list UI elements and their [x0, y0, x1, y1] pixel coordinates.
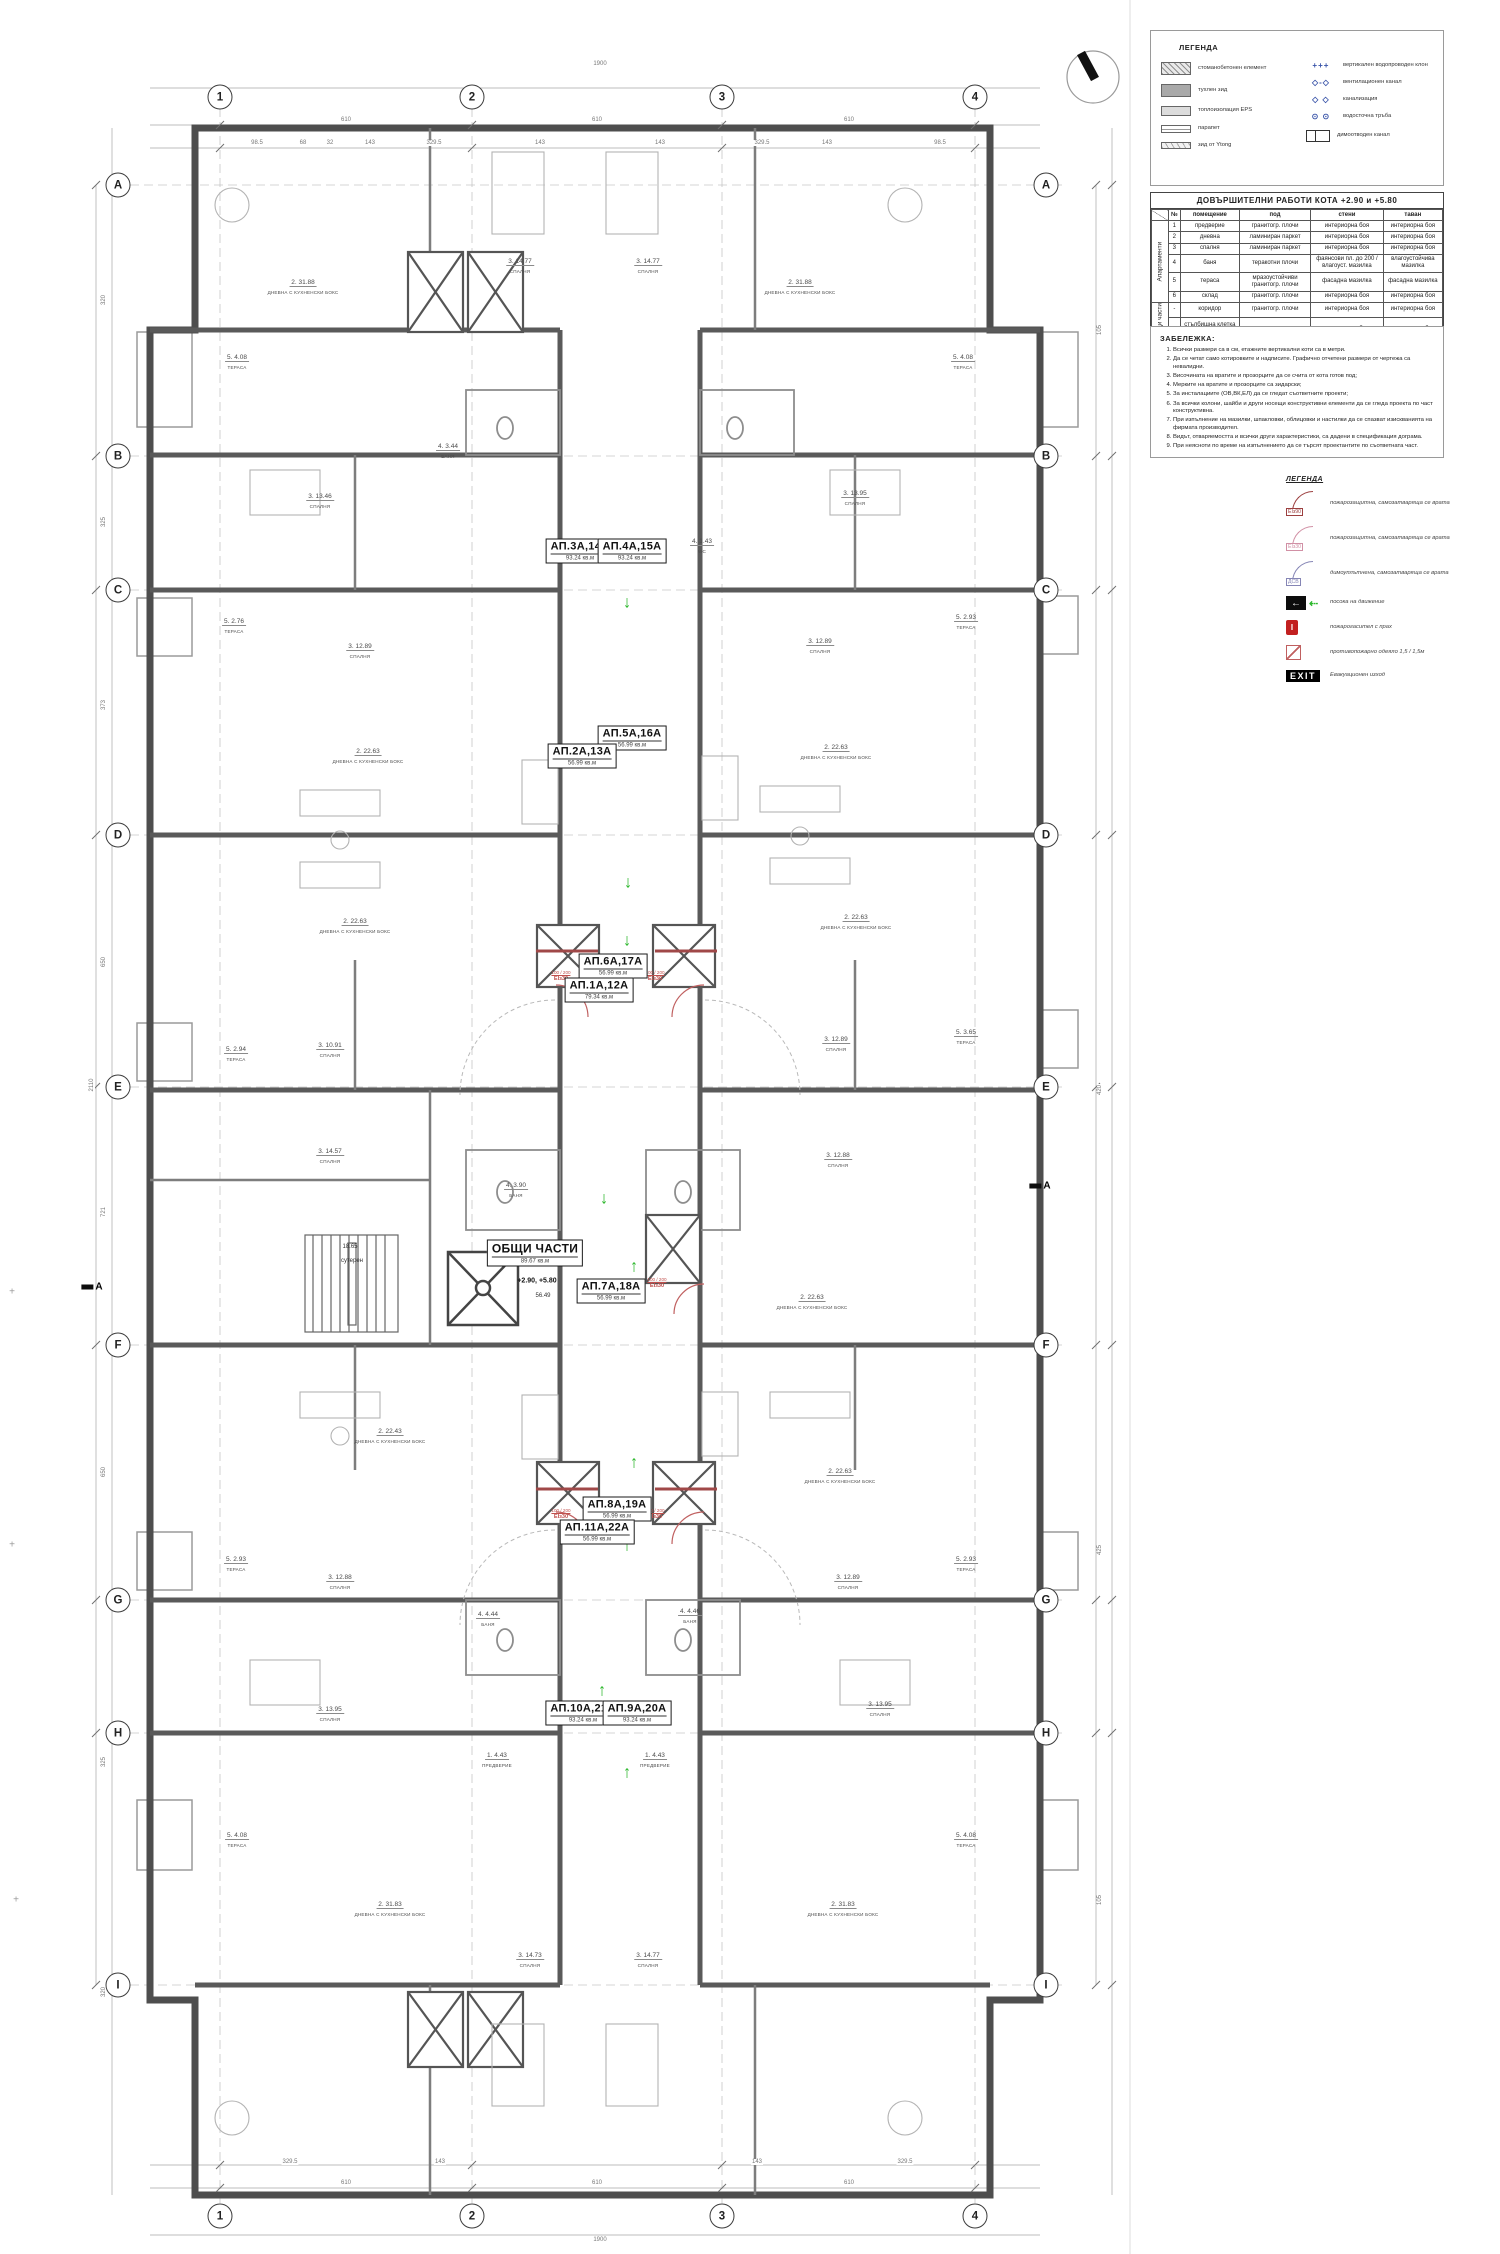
dimension-text: 143: [534, 140, 546, 146]
nm-text: АП.7А,18А: [582, 1281, 641, 1293]
rn-text: СПАЛНЯ: [306, 504, 334, 509]
legend-materials: ЛЕГЕНДА стоманобетонен елементтухлен зид…: [1150, 30, 1444, 186]
legend-item-label: водосточна тръба: [1343, 113, 1391, 120]
nm-text: АП.8А,19А: [588, 1499, 647, 1511]
ra-text: 3. 13.46: [306, 493, 334, 501]
table-row: 3спалняламиниран паркетинтериорна бояинт…: [1152, 243, 1443, 254]
nm-text: АП.6А,17А: [584, 956, 643, 968]
dimension-text: 373: [101, 699, 107, 711]
legend-item-label: димоотводен канал: [1337, 132, 1390, 139]
table-row: 5терасамразоустойчиви гранитогр. плочифа…: [1152, 273, 1443, 291]
table-cell: интериорна боя: [1311, 302, 1384, 317]
legend-item: +++вертикален водопроводен клон: [1306, 62, 1433, 70]
grid-axis-bubble: 1: [208, 85, 233, 110]
rn-text: ТЕРАСА: [225, 365, 249, 370]
rn-text: ДНЕВНА С КУХНЕНСКИ БОКС: [821, 925, 892, 930]
ra-text: 5. 2.76: [222, 618, 246, 626]
rn-text: ДНЕВНА С КУХНЕНСКИ БОКС: [808, 1912, 879, 1917]
dimension-text: 610: [843, 2180, 855, 2186]
fire-legend-item: EIз90пожарозащитна, самозатваряща се вра…: [1286, 491, 1456, 516]
table-cell: баня: [1180, 254, 1239, 272]
table-cell: дневна: [1180, 232, 1239, 243]
room-label: 5. 2.93ТЕРАСА: [954, 606, 978, 630]
parapet-swatch-icon: [1161, 125, 1191, 133]
direction-arrow-icon: ↓: [623, 932, 632, 949]
section-marker: А: [81, 1282, 102, 1293]
table-cell: 3: [1169, 243, 1181, 254]
grid-axis-bubble: A: [106, 173, 131, 198]
dimension-text: 98.5: [933, 140, 947, 146]
rn-text: ДНЕВНА С КУХНЕНСКИ БОКС: [355, 1912, 426, 1917]
room-label: 3. 12.89СПАЛНЯ: [806, 630, 834, 654]
room-label: 3. 14.73СПАЛНЯ: [516, 1944, 544, 1968]
ar-text: 56.99 кв.м: [582, 1294, 641, 1303]
ar-text: 93.24 кв.м: [603, 554, 662, 563]
fire-door-label: 100 / 200EIз30: [645, 970, 664, 982]
fire-legend-label: противопожарно одеяло 1,5 / 1,5м: [1330, 649, 1424, 656]
apartment-label: АП.7А,18А56.99 кв.м: [577, 1279, 646, 1304]
fire-door-90-icon: EIз90: [1286, 491, 1320, 516]
sl-text: А: [95, 1282, 102, 1293]
ra-text: 5. 4.08: [225, 354, 249, 362]
room-label: 2. 22.63ДНЕВНА С КУХНЕНСКИ БОКС: [777, 1286, 848, 1310]
table-cell: тераса: [1180, 273, 1239, 291]
ra-text: 3. 12.89: [806, 638, 834, 646]
door-arc: ДСВ: [1286, 578, 1301, 586]
table-group-label: Апартаменти: [1152, 221, 1169, 303]
smoke-duct-icon: [1306, 130, 1330, 142]
rn-text: ПРЕДВЕРИЕ: [640, 1763, 670, 1768]
note-item: Всички размери са в см, етажните вертика…: [1173, 347, 1434, 355]
flag-text: [1029, 1184, 1041, 1189]
room-label: 5. 3.65ТЕРАСА: [954, 1021, 978, 1045]
table-row: 6складгранитогр. плочиинтериорна бояинте…: [1152, 291, 1443, 302]
legend-fire-safety: ЛЕГЕНДА EIз90пожарозащитна, самозатварящ…: [1286, 476, 1456, 692]
grid-axis-bubble: C: [106, 578, 131, 603]
table-cell: интериорна боя: [1383, 232, 1442, 243]
fire-legend-item: ←⇠посока на движение: [1286, 596, 1456, 610]
legend-item: тухлен зид: [1161, 84, 1306, 97]
grid-axis-bubble: D: [1034, 823, 1059, 848]
fire-door-label: 100 / 200EIз30: [647, 1277, 666, 1289]
finish-table-body: Апартаменти1предвериегранитогр. плочиинт…: [1152, 221, 1443, 342]
grid-axis-bubble: F: [1034, 1333, 1059, 1358]
room-label: 2. 22.63ДНЕВНА С КУХНЕНСКИ БОКС: [805, 1460, 876, 1484]
flag-text: [81, 1285, 93, 1290]
ar-text: 93.24 кв.м: [608, 1716, 667, 1725]
fire-legend-item: Iпожарогасител с прах: [1286, 620, 1456, 635]
exit-sign-icon: EXIT: [1286, 670, 1320, 682]
table-column-header: таван: [1383, 210, 1442, 221]
room-label: 5. 2.76ТЕРАСА: [222, 610, 246, 634]
legend-item-label: тухлен зид: [1198, 87, 1227, 94]
room-label: 3. 12.88СПАЛНЯ: [326, 1566, 354, 1590]
table-corner-cell: [1152, 210, 1169, 221]
rn-text: СПАЛНЯ: [866, 1712, 894, 1717]
room-label: 5. 4.08ТЕРАСА: [951, 346, 975, 370]
ra-text: 3. 12.89: [822, 1036, 850, 1044]
table-cell: мразоустойчиви гранитогр. плочи: [1239, 273, 1310, 291]
plan-text: сутерен: [341, 1258, 363, 1264]
fire-legend-item: противопожарно одеяло 1,5 / 1,5м: [1286, 645, 1456, 660]
table-cell: интериорна боя: [1311, 232, 1384, 243]
dimension-text: 143: [654, 140, 666, 146]
legend-item-label: зид от Ytong: [1198, 142, 1231, 149]
legend-item-label: стоманобетонен елемент: [1198, 65, 1266, 72]
table-column-header: №: [1169, 210, 1181, 221]
fire-legend-label: пожарогасител с прах: [1330, 624, 1392, 631]
dimension-text: 325: [101, 516, 107, 528]
direction-arrow-icon: ↑: [630, 1454, 639, 1471]
ra-text: 2. 22.63: [842, 914, 870, 922]
legend-title: ЛЕГЕНДА: [1179, 43, 1433, 52]
rn-text: СПАЛНЯ: [316, 1053, 344, 1058]
concrete-swatch-icon: [1161, 62, 1191, 75]
direction-arrow-icon: ↑: [598, 1682, 607, 1699]
dimension-text: 105: [1097, 324, 1103, 336]
table-cell: -: [1169, 302, 1181, 317]
table-cell: 5: [1169, 273, 1181, 291]
rn-text: ПРЕДВЕРИЕ: [482, 1763, 512, 1768]
rn-text: СПАЛНЯ: [316, 1717, 344, 1722]
rn-text: ДНЕВНА С КУХНЕНСКИ БОКС: [805, 1479, 876, 1484]
fire-legend-label: пожарозащитна, самозатваряща се врата: [1330, 535, 1450, 542]
apartment-label: АП.4А,15А93.24 кв.м: [598, 539, 667, 564]
registration-cross: +: [13, 1895, 19, 1906]
ra-text: 3. 12.89: [346, 643, 374, 651]
brick-swatch-icon: [1161, 84, 1191, 97]
rn-text: СПАЛНЯ: [516, 1963, 544, 1968]
fire-legend-item: ДСВдимоуплътнена, самозатваряща се врата: [1286, 561, 1456, 586]
fire-door-label: 100 / 200EIз30: [551, 1508, 570, 1520]
notes-box: ЗАБЕЛЕЖКА: Всички размери са в см, етажн…: [1150, 326, 1444, 458]
grid-axis-bubble: 2: [460, 2204, 485, 2229]
ra-text: 2. 22.63: [822, 744, 850, 752]
room-label: 2. 31.83ДНЕВНА С КУХНЕНСКИ БОКС: [355, 1893, 426, 1917]
water-riser-icon: +++: [1306, 62, 1336, 70]
room-label: 3. 14.77СПАЛНЯ: [506, 250, 534, 274]
direction-arrow-icon: ↑: [630, 1258, 639, 1275]
registration-cross: +: [9, 1287, 15, 1298]
grid-axis-bubble: F: [106, 1333, 131, 1358]
rn-text: БАНЯ: [476, 1622, 500, 1627]
table-column-header: помещение: [1180, 210, 1239, 221]
table-cell: 6: [1169, 291, 1181, 302]
fire-legend-item: EXITЕвакуационен изход: [1286, 670, 1456, 682]
ra-text: 3. 14.77: [506, 258, 534, 266]
dlt-text: EIз30: [647, 1283, 666, 1289]
table-cell: интериорна боя: [1311, 291, 1384, 302]
ar-text: 56.99 кв.м: [565, 1535, 630, 1544]
room-label: 3. 13.95СПАЛНЯ: [841, 482, 869, 506]
dimension-text: 98.5: [250, 140, 264, 146]
legend-item: ◇ ◇канализация: [1306, 96, 1433, 104]
table-cell: ламиниран паркет: [1239, 232, 1310, 243]
sewer-icon: ◇ ◇: [1306, 96, 1336, 104]
note-item: При неясноти по време на изпълнението да…: [1173, 443, 1434, 451]
rn-text: ДНЕВНА С КУХНЕНСКИ БОКС: [801, 755, 872, 760]
ar-text: 56.99 кв.м: [553, 759, 612, 768]
plan-text: 18.65: [342, 1244, 357, 1250]
vent-duct-icon: ◇-◇: [1306, 79, 1336, 87]
grid-axis-bubble: 3: [710, 2204, 735, 2229]
door-arc: EIз90: [1286, 508, 1303, 516]
ra-text: 3. 12.88: [326, 1574, 354, 1582]
downpipe-icon: ⊙ ⊙: [1306, 113, 1336, 121]
dimension-text: 329.5: [281, 2159, 298, 2165]
dimension-text: 143: [364, 140, 376, 146]
room-label: 3. 13.95СПАЛНЯ: [316, 1698, 344, 1722]
registration-cross: +: [9, 1540, 15, 1551]
direction-arrow-icon: ←⇠: [1286, 596, 1320, 610]
fire-legend-title: ЛЕГЕНДА: [1286, 476, 1456, 483]
dimension-text: 650: [101, 956, 107, 968]
section-marker: А: [1029, 1181, 1050, 1192]
room-label: 4. 3.44БАНЯ: [436, 435, 460, 459]
nm-text: АП.2А,13А: [553, 746, 612, 758]
table-cell: гранитогр. плочи: [1239, 291, 1310, 302]
grid-axis-bubble: D: [106, 823, 131, 848]
note-item: За всички колони, шайби и други носещи к…: [1173, 401, 1434, 416]
fire-door-30-icon: EIз30: [1286, 526, 1320, 551]
grid-axis-bubble: I: [1034, 1973, 1059, 1998]
rn-text: ДНЕВНА С КУХНЕНСКИ БОКС: [765, 290, 836, 295]
table-cell: предверие: [1180, 221, 1239, 232]
rn-text: СПАЛНЯ: [824, 1163, 852, 1168]
grid-axis-bubble: A: [1034, 173, 1059, 198]
dimension-text: 610: [843, 117, 855, 123]
fire-extinguisher-icon: I: [1286, 620, 1320, 635]
room-label: 2. 22.63ДНЕВНА С КУХНЕНСКИ БОКС: [320, 910, 391, 934]
dimension-text: 32: [326, 140, 335, 146]
room-label: 5. 2.93ТЕРАСА: [224, 1548, 248, 1572]
room-label: 5. 4.08ТЕРАСА: [954, 1824, 978, 1848]
rn-text: СПАЛНЯ: [634, 1963, 662, 1968]
ra-text: 4. 4.44: [476, 1611, 500, 1619]
nm-text: ОБЩИ ЧАСТИ: [492, 1242, 578, 1256]
fire-legend-items: EIз90пожарозащитна, самозатваряща се вра…: [1286, 491, 1456, 682]
legend-item-label: вертикален водопроводен клон: [1343, 62, 1428, 69]
table-cell: гранитогр. плочи: [1239, 221, 1310, 232]
smoke-door-icon: ДСВ: [1286, 561, 1320, 586]
dimension-text: 610: [591, 2180, 603, 2186]
grid-axis-bubble: 3: [710, 85, 735, 110]
legend-item: стоманобетонен елемент: [1161, 62, 1306, 75]
dimension-text: 610: [591, 117, 603, 123]
note-item: Височината на вратите и прозорците да се…: [1173, 373, 1434, 381]
rn-text: СПАЛНЯ: [506, 269, 534, 274]
rn-text: БАНЯ: [678, 1619, 702, 1624]
dimension-text: 105: [1097, 1894, 1103, 1906]
table-row: Апартаменти1предвериегранитогр. плочиинт…: [1152, 221, 1443, 232]
apartment-label: АП.2А,13А56.99 кв.м: [548, 744, 617, 769]
legend-materials-right: +++вертикален водопроводен клон◇-◇вентил…: [1306, 62, 1433, 158]
legend-item: ⊙ ⊙водосточна тръба: [1306, 113, 1433, 121]
ra-text: 4. 3.44: [436, 443, 460, 451]
room-label: 3. 14.57СПАЛНЯ: [316, 1140, 344, 1164]
finish-works-table: ДОВЪРШИТЕЛНИ РАБОТИ КОТА +2.90 и +5.80 №…: [1150, 192, 1444, 343]
rn-text: ДНЕВНА С КУХНЕНСКИ БОКС: [777, 1305, 848, 1310]
ra-text: 1. 4.43: [643, 1752, 667, 1760]
ra-text: 2. 31.83: [829, 1901, 857, 1909]
table-column-header: под: [1239, 210, 1310, 221]
table-cell: интериорна боя: [1383, 302, 1442, 317]
ra-text: 4. 4.46: [678, 1608, 702, 1616]
room-label: 5. 4.08ТЕРАСА: [225, 1824, 249, 1848]
rn-text: СПАЛНЯ: [822, 1047, 850, 1052]
common-area-label: ОБЩИ ЧАСТИ89.67 кв.м: [487, 1240, 583, 1267]
finish-table-title: ДОВЪРШИТЕЛНИ РАБОТИ КОТА +2.90 и +5.80: [1151, 193, 1443, 209]
room-label: 3. 14.77СПАЛНЯ: [634, 1944, 662, 1968]
table-cell: фасадна мазилка: [1311, 273, 1384, 291]
legend-item-label: канализация: [1343, 96, 1378, 103]
fire-blanket-icon: [1286, 645, 1320, 660]
ra-text: 2. 31.88: [289, 279, 317, 287]
rn-text: ТЕРАСА: [222, 629, 246, 634]
room-label: 3. 13.95СПАЛНЯ: [866, 1693, 894, 1717]
nm-text: АП.4А,15А: [603, 541, 662, 553]
grid-axis-bubble: 4: [963, 2204, 988, 2229]
room-label: 4. 3.90БАНЯ: [504, 1174, 528, 1198]
ra-text: 5. 4.08: [951, 354, 975, 362]
room-label: 5. 4.08ТЕРАСА: [225, 346, 249, 370]
rn-text: ТЕРАСА: [224, 1057, 248, 1062]
legend-item: ◇-◇вентилационен канал: [1306, 79, 1433, 87]
rn-text: БАНЯ: [504, 1193, 528, 1198]
grid-axis-bubble: B: [1034, 444, 1059, 469]
ra-text: 5. 2.93: [224, 1556, 248, 1564]
rn-text: БАНЯ: [436, 454, 460, 459]
room-label: 2. 31.88ДНЕВНА С КУХНЕНСКИ БОКС: [765, 271, 836, 295]
note-item: Да се четат само котировките и надписите…: [1173, 356, 1434, 371]
ra-text: 2. 22.63: [826, 1468, 854, 1476]
room-label: 5. 2.93ТЕРАСА: [954, 1548, 978, 1572]
table-cell: фаянсови пл. до 200 / влагоуст. мазилка: [1311, 254, 1384, 272]
direction-arrow-icon: ↑: [623, 1764, 632, 1781]
rn-text: СПАЛНЯ: [841, 501, 869, 506]
ra-text: 3. 13.95: [841, 490, 869, 498]
table-cell: теракотни плочи: [1239, 254, 1310, 272]
finish-table-header: №помещениеподстенитаван: [1152, 210, 1443, 221]
grid-axis-bubble: C: [1034, 578, 1059, 603]
dimension-text: 1900: [592, 2237, 607, 2243]
room-label: 2. 31.88ДНЕВНА С КУХНЕНСКИ БОКС: [268, 271, 339, 295]
nm-text: АП.1А,12А: [570, 980, 629, 992]
room-label: 3. 12.88СПАЛНЯ: [824, 1144, 852, 1168]
ar-text: 56.99 кв.м: [584, 969, 643, 978]
ra-text: 5. 2.93: [954, 1556, 978, 1564]
room-label: 3. 10.91СПАЛНЯ: [316, 1034, 344, 1058]
rn-text: СПАЛНЯ: [316, 1159, 344, 1164]
apartment-label: АП.1А,12А79.34 кв.м: [565, 978, 634, 1003]
table-cell: спалня: [1180, 243, 1239, 254]
dimension-text: 329.5: [753, 140, 770, 146]
table-column-header: стени: [1311, 210, 1384, 221]
room-label: 3. 12.89СПАЛНЯ: [834, 1566, 862, 1590]
rn-text: ТЕРАСА: [954, 1567, 978, 1572]
grid-axis-bubble: G: [106, 1588, 131, 1613]
table-row: Общи части-коридоргранитогр. плочиинтери…: [1152, 302, 1443, 317]
grid-axis-bubble: 1: [208, 2204, 233, 2229]
north-arrow-icon: [1064, 48, 1122, 106]
rn-text: СПАЛНЯ: [834, 1585, 862, 1590]
ra-text: 5. 3.65: [954, 1029, 978, 1037]
ra-text: 2. 22.63: [798, 1294, 826, 1302]
eps-swatch-icon: [1161, 106, 1191, 116]
ra-text: 5. 4.08: [225, 1832, 249, 1840]
room-label: 3. 12.89СПАЛНЯ: [822, 1028, 850, 1052]
table-cell: гранитогр. плочи: [1239, 302, 1310, 317]
table-cell: интериорна боя: [1311, 243, 1384, 254]
rn-text: ДНЕВНА С КУХНЕНСКИ БОКС: [355, 1439, 426, 1444]
room-label: 4. 4.46БАНЯ: [678, 1600, 702, 1624]
legend-item: зид от Ytong: [1161, 142, 1306, 149]
dimension-text: 610: [340, 2180, 352, 2186]
dimension-text: 325: [101, 1756, 107, 1768]
legend-item-label: парапет: [1198, 125, 1220, 132]
direction-arrow-icon: ↓: [623, 594, 632, 611]
rn-text: ТЕРАСА: [225, 1843, 249, 1848]
room-label: 1. 4.43ПРЕДВЕРИЕ: [482, 1744, 512, 1768]
room-label: 3. 13.46СПАЛНЯ: [306, 485, 334, 509]
table-cell: интериорна боя: [1383, 221, 1442, 232]
room-label: 2. 22.63ДНЕВНА С КУХНЕНСКИ БОКС: [801, 736, 872, 760]
ra-text: 3. 14.77: [634, 1952, 662, 1960]
dimension-text: 650: [101, 1466, 107, 1478]
note-item: Мерките на вратите и прозорците са зидар…: [1173, 382, 1434, 390]
fire-legend-item: EIз30пожарозащитна, самозатваряща се вра…: [1286, 526, 1456, 551]
grid-axis-bubble: H: [106, 1721, 131, 1746]
grid-axis-bubble: B: [106, 444, 131, 469]
rn-text: WC: [690, 549, 714, 554]
ra-text: 3. 14.77: [634, 258, 662, 266]
grid-axis-bubble: I: [106, 1973, 131, 1998]
table-row: 2дневналаминиран паркетинтериорна бояинт…: [1152, 232, 1443, 243]
ra-text: 2. 31.88: [786, 279, 814, 287]
ra-text: 2. 22.43: [376, 1428, 404, 1436]
room-label: 2. 22.63ДНЕВНА С КУХНЕНСКИ БОКС: [333, 740, 404, 764]
room-label: 3. 12.89СПАЛНЯ: [346, 635, 374, 659]
ra-text: 3. 14.57: [316, 1148, 344, 1156]
ra-text: 2. 31.83: [376, 1901, 404, 1909]
dimension-text: 1900: [592, 61, 607, 67]
apartment-label: АП.8А,19А56.99 кв.м: [583, 1497, 652, 1522]
dlt-text: EIз30: [645, 976, 664, 982]
ra-text: 5. 2.94: [224, 1046, 248, 1054]
legend-item: топлоизолация EPS: [1161, 106, 1306, 116]
dimension-text: 721: [101, 1206, 107, 1218]
ra-text: 5. 2.93: [954, 614, 978, 622]
dimension-text: 610: [340, 117, 352, 123]
sl-text: А: [1043, 1181, 1050, 1192]
apartment-label: АП.11А,22А56.99 кв.м: [560, 1520, 635, 1545]
ra-text: 3. 13.95: [866, 1701, 894, 1709]
rn-text: ТЕРАСА: [954, 1040, 978, 1045]
fire-legend-label: димоуплътнена, самозатваряща се врата: [1330, 570, 1449, 577]
room-label: 4. 1.43WC: [690, 530, 714, 554]
table-cell: интериорна боя: [1383, 291, 1442, 302]
ra-text: 1. 4.43: [485, 1752, 509, 1760]
note-item: Видът, отваряемостта и всички други хара…: [1173, 434, 1434, 442]
table-cell: 1: [1169, 221, 1181, 232]
legend-item: димоотводен канал: [1306, 130, 1433, 142]
direction-arrow-icon: ↓: [600, 1190, 609, 1207]
table-cell: влагоустойчива мазилка: [1383, 254, 1442, 272]
rn-text: ДНЕВНА С КУХНЕНСКИ БОКС: [333, 759, 404, 764]
rn-text: ТЕРАСА: [954, 1843, 978, 1848]
rn-text: ДНЕВНА С КУХНЕНСКИ БОКС: [320, 929, 391, 934]
ar-text: 79.34 кв.м: [570, 993, 629, 1002]
